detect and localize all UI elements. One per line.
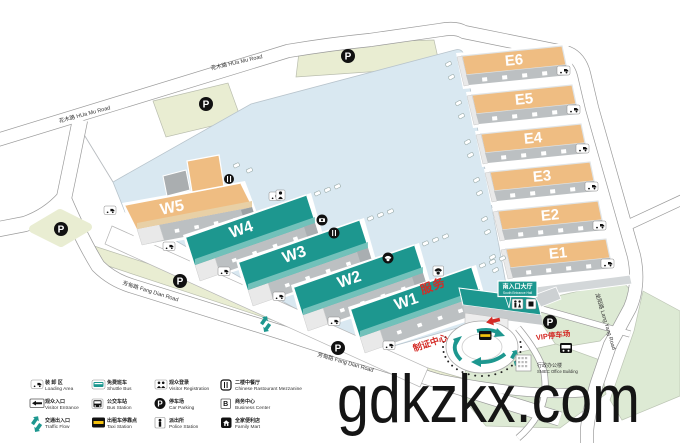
svg-text:停车场: 停车场 [169, 398, 184, 405]
svg-text:Family Mart: Family Mart [235, 424, 261, 430]
svg-text:gdkzkx.com: gdkzkx.com [337, 361, 640, 437]
svg-text:Car Parking: Car Parking [169, 405, 195, 411]
svg-text:装 卸 区: 装 卸 区 [44, 379, 63, 386]
svg-text:南入口大厅: 南入口大厅 [502, 283, 532, 291]
svg-text:商务中心: 商务中心 [235, 398, 255, 405]
svg-text:E1: E1 [548, 244, 568, 263]
svg-text:P: P [177, 277, 184, 288]
svg-text:Shuttle Bus: Shuttle Bus [107, 386, 132, 392]
svg-text:E3: E3 [532, 167, 552, 186]
svg-text:P: P [157, 399, 163, 408]
svg-text:派出所: 派出所 [169, 417, 184, 424]
svg-text:Chinese Rastourant Mezzanine: Chinese Rastourant Mezzanine [235, 386, 302, 392]
svg-text:出租车停靠点: 出租车停靠点 [107, 417, 137, 424]
svg-text:E4: E4 [523, 129, 544, 148]
svg-text:E6: E6 [504, 51, 524, 70]
svg-text:E5: E5 [514, 90, 534, 109]
svg-text:P: P [58, 225, 65, 236]
svg-text:Loading Area: Loading Area [45, 386, 74, 392]
svg-text:Business Center: Business Center [235, 405, 271, 411]
svg-text:South Entrance Hall: South Entrance Hall [503, 291, 533, 295]
svg-text:Bus Station: Bus Station [107, 405, 132, 411]
svg-text:P: P [203, 100, 210, 111]
svg-text:E2: E2 [540, 206, 560, 225]
svg-text:B: B [223, 401, 228, 408]
svg-text:交通出入口: 交通出入口 [45, 417, 70, 424]
svg-text:P: P [335, 344, 342, 355]
svg-text:Traffic Flow: Traffic Flow [45, 424, 70, 430]
svg-text:全家便利店: 全家便利店 [234, 417, 260, 424]
svg-text:观众入口: 观众入口 [45, 398, 65, 405]
svg-text:Visitor Entrance: Visitor Entrance [45, 405, 79, 411]
svg-text:P: P [345, 52, 352, 63]
svg-text:Police Station: Police Station [169, 424, 199, 430]
svg-text:公交车站: 公交车站 [107, 398, 127, 405]
svg-text:P: P [547, 318, 554, 329]
svg-text:Taxi Station: Taxi Station [107, 424, 132, 430]
svg-text:二楼中餐厅: 二楼中餐厅 [235, 379, 260, 386]
svg-text:观众登录: 观众登录 [169, 379, 189, 386]
svg-text:Visitor Registration: Visitor Registration [169, 386, 210, 392]
svg-text:免费班车: 免费班车 [107, 379, 127, 386]
